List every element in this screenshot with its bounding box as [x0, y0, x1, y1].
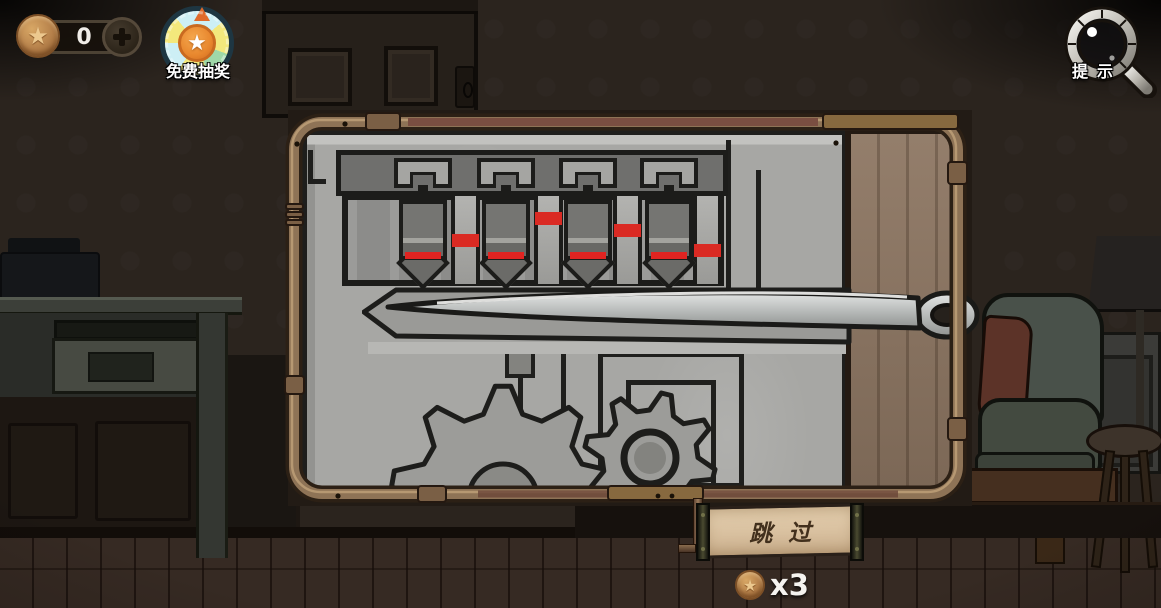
hint-label: 提示 — [1072, 58, 1122, 82]
hud: 0 ★ ★ 免费抽奖 — [0, 0, 1161, 608]
flame-icon — [194, 7, 210, 21]
game-screen: 跳过 ★ x3 0 ★ ★ 免费抽奖 — [0, 0, 1161, 608]
add-stars-button[interactable] — [102, 17, 142, 57]
star-coin-icon: ★ — [16, 14, 60, 58]
medal-star-icon: ★ — [178, 24, 216, 62]
magnifier-icon — [1056, 2, 1160, 98]
star-count-value: 0 — [76, 25, 91, 50]
free-draw-label: 免费抽奖 — [142, 58, 254, 82]
hint-button[interactable] — [1056, 2, 1160, 98]
